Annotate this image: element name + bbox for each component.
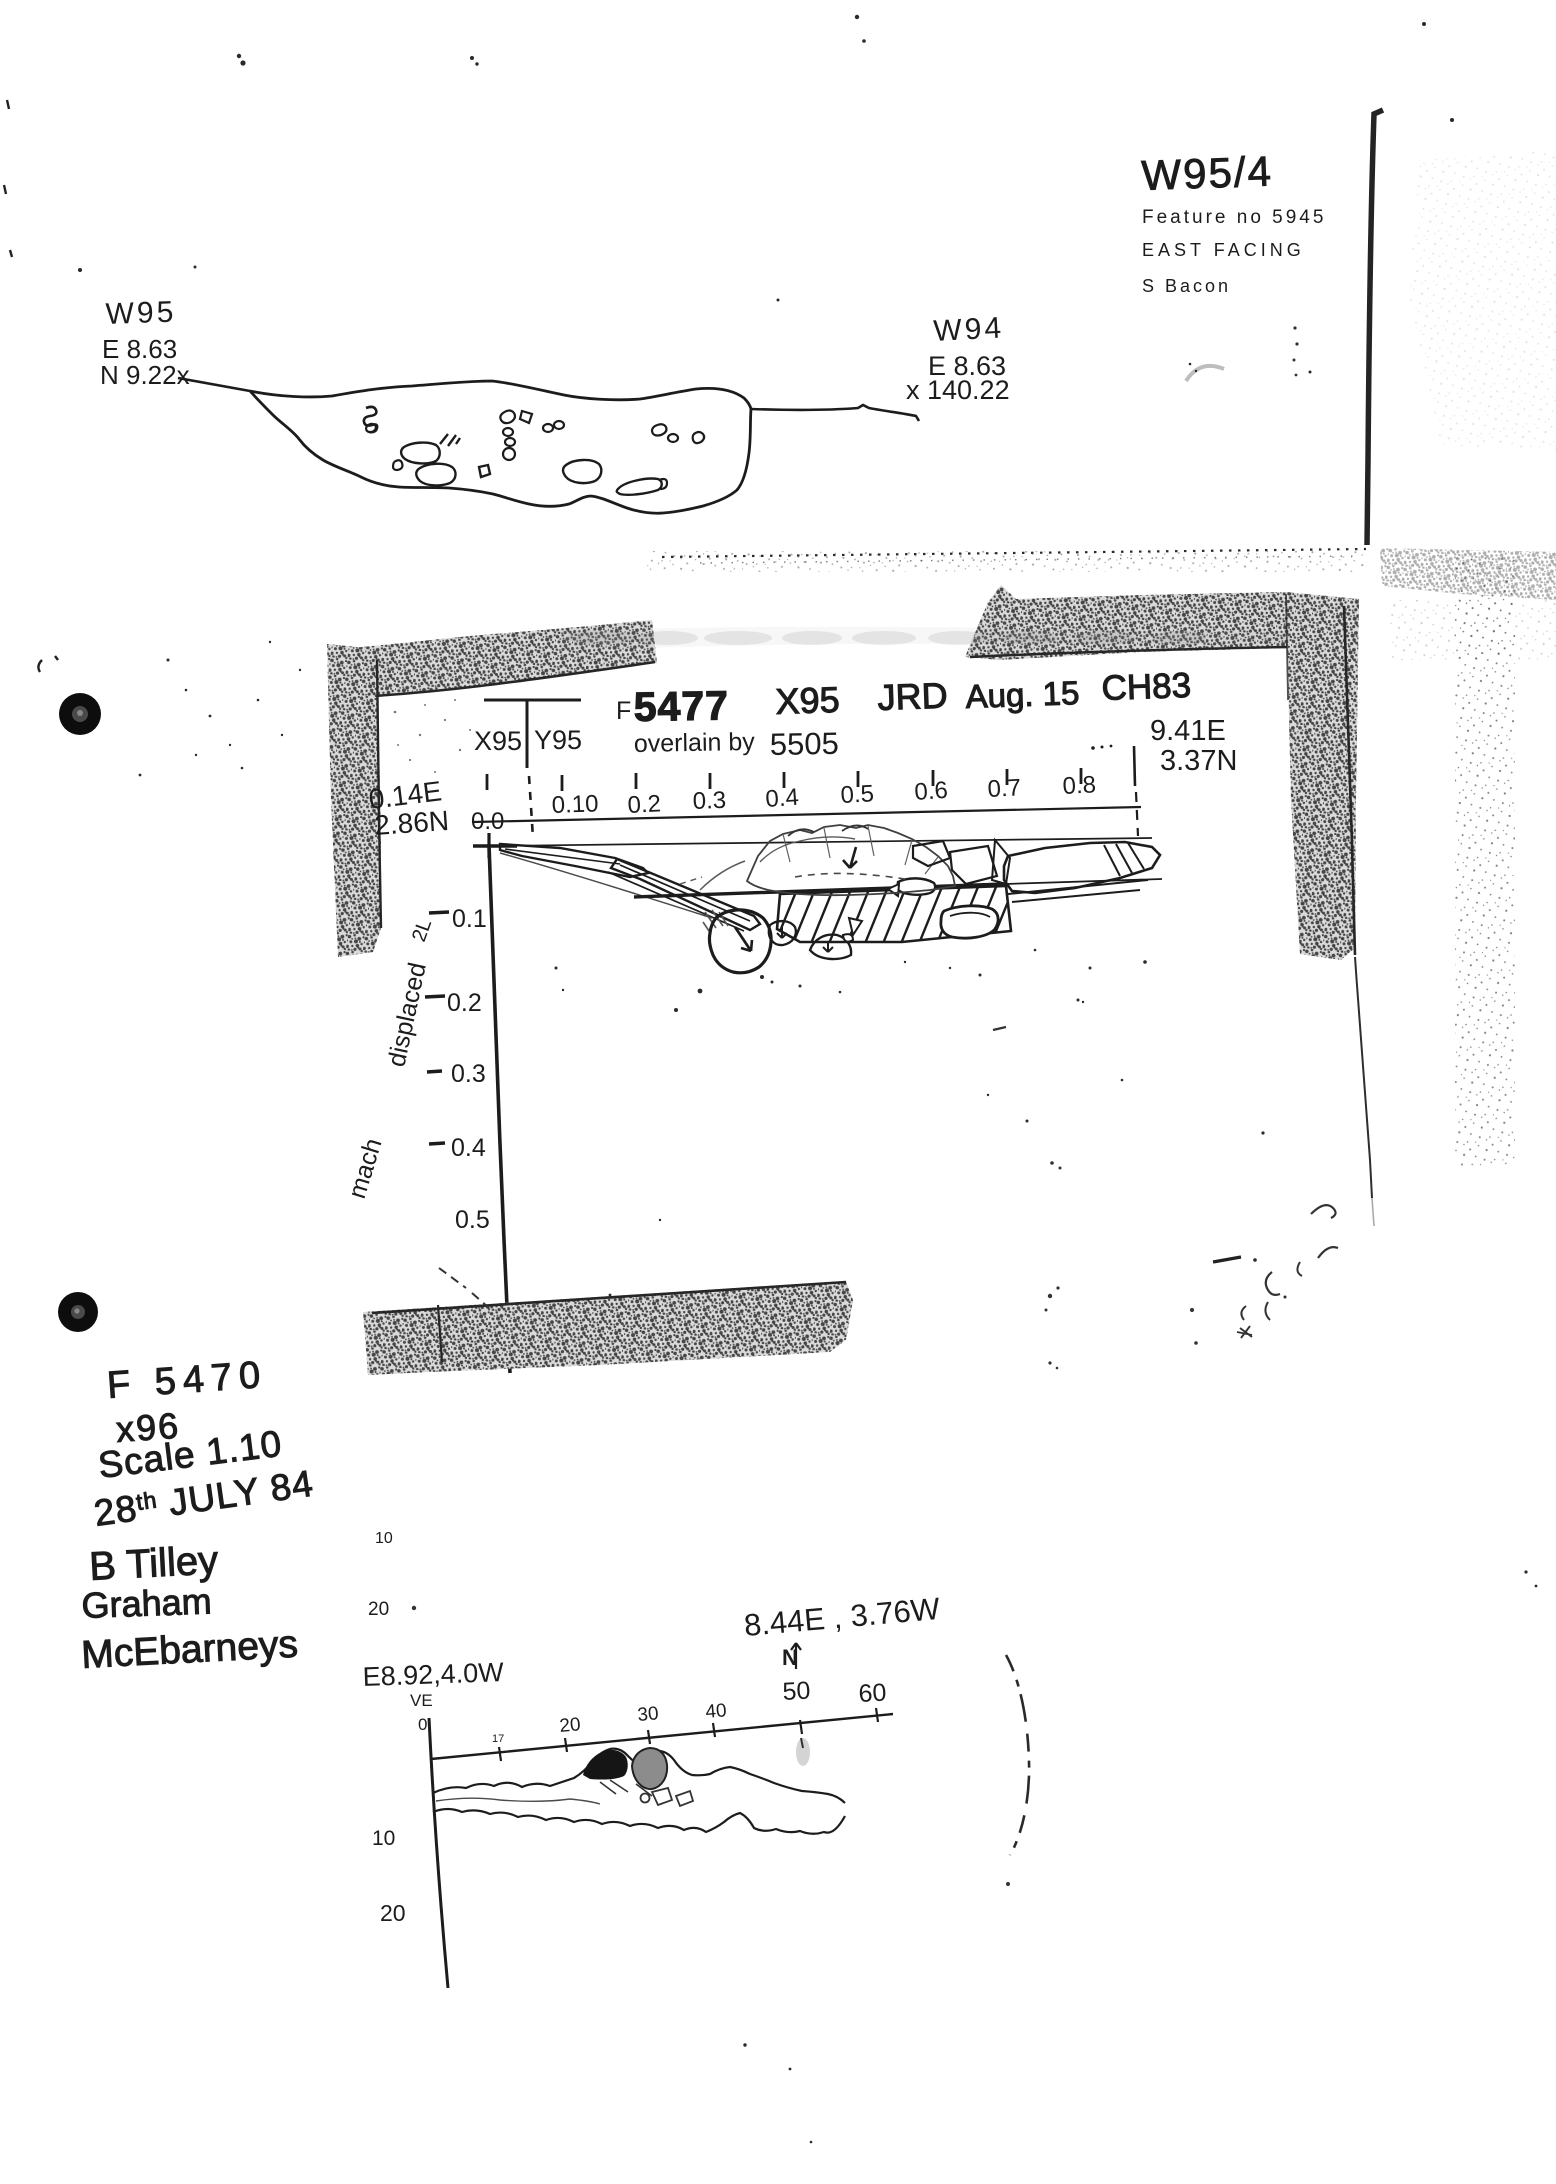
svg-text:3.37N: 3.37N xyxy=(1160,745,1237,777)
svg-text:0.2: 0.2 xyxy=(627,790,662,819)
svg-text:X95: X95 xyxy=(474,726,522,756)
svg-text:Graham: Graham xyxy=(81,1580,212,1626)
svg-text:0.5: 0.5 xyxy=(840,780,875,809)
svg-text:JRD: JRD xyxy=(877,675,948,718)
svg-text:20: 20 xyxy=(559,1714,582,1737)
svg-text:10: 10 xyxy=(372,1827,395,1850)
svg-text:Feature no 5945: Feature no 5945 xyxy=(1142,207,1326,228)
svg-text:0.6: 0.6 xyxy=(914,777,949,806)
svg-text:30: 30 xyxy=(637,1703,660,1726)
svg-text:2.86N: 2.86N xyxy=(373,805,450,841)
svg-text:W94: W94 xyxy=(933,311,1005,348)
svg-text:mach: mach xyxy=(343,1135,388,1202)
svg-text:W95/4: W95/4 xyxy=(1141,147,1274,199)
svg-text:0.1: 0.1 xyxy=(452,905,487,933)
svg-text:20: 20 xyxy=(380,1900,406,1926)
svg-text:0.3: 0.3 xyxy=(451,1060,486,1088)
svg-text:0.2: 0.2 xyxy=(447,989,482,1017)
svg-text:10: 10 xyxy=(375,1530,393,1547)
svg-text:0.4: 0.4 xyxy=(451,1134,486,1162)
svg-text:Y95: Y95 xyxy=(534,725,582,755)
svg-text:EAST FACING: EAST FACING xyxy=(1142,240,1305,260)
svg-text:overlain by: overlain by xyxy=(634,728,756,758)
svg-text:W95: W95 xyxy=(105,296,177,331)
svg-text:17: 17 xyxy=(492,1733,504,1745)
svg-text:8.44E , 3.76W: 8.44E , 3.76W xyxy=(743,1591,942,1643)
svg-text:CH83: CH83 xyxy=(1101,666,1192,708)
svg-text:5505: 5505 xyxy=(770,726,840,762)
svg-text:20: 20 xyxy=(368,1599,389,1620)
svg-text:0.0: 0.0 xyxy=(471,808,504,835)
svg-text:50: 50 xyxy=(782,1677,811,1706)
svg-text:0.7: 0.7 xyxy=(987,774,1022,803)
svg-text:0.5: 0.5 xyxy=(455,1206,490,1234)
svg-text:S Bacon: S Bacon xyxy=(1142,276,1231,296)
svg-text:2L: 2L xyxy=(408,916,436,944)
svg-text:E8.92,4.0W: E8.92,4.0W xyxy=(362,1657,505,1692)
svg-text:N 9.22x: N 9.22x xyxy=(100,360,190,390)
svg-text:F: F xyxy=(616,697,631,725)
svg-text:displaced: displaced xyxy=(382,960,431,1069)
svg-text:McEbarneys: McEbarneys xyxy=(80,1623,299,1677)
svg-text:0.8: 0.8 xyxy=(1062,771,1097,800)
svg-text:0.10: 0.10 xyxy=(551,790,599,819)
svg-text:X95: X95 xyxy=(775,679,840,722)
svg-text:0.4: 0.4 xyxy=(765,784,800,813)
svg-text:x 140.22: x 140.22 xyxy=(906,375,1010,405)
svg-text:40: 40 xyxy=(705,1700,728,1723)
svg-text:60: 60 xyxy=(858,1679,887,1708)
svg-text:9.41E: 9.41E xyxy=(1150,715,1226,747)
svg-text:0.3: 0.3 xyxy=(692,787,726,815)
svg-text:Aug. 15: Aug. 15 xyxy=(965,674,1080,715)
svg-text:0: 0 xyxy=(418,1715,427,1734)
svg-text:F 5470: F 5470 xyxy=(106,1354,269,1407)
svg-text:VE: VE xyxy=(410,1691,433,1710)
svg-text:5477: 5477 xyxy=(633,682,729,730)
